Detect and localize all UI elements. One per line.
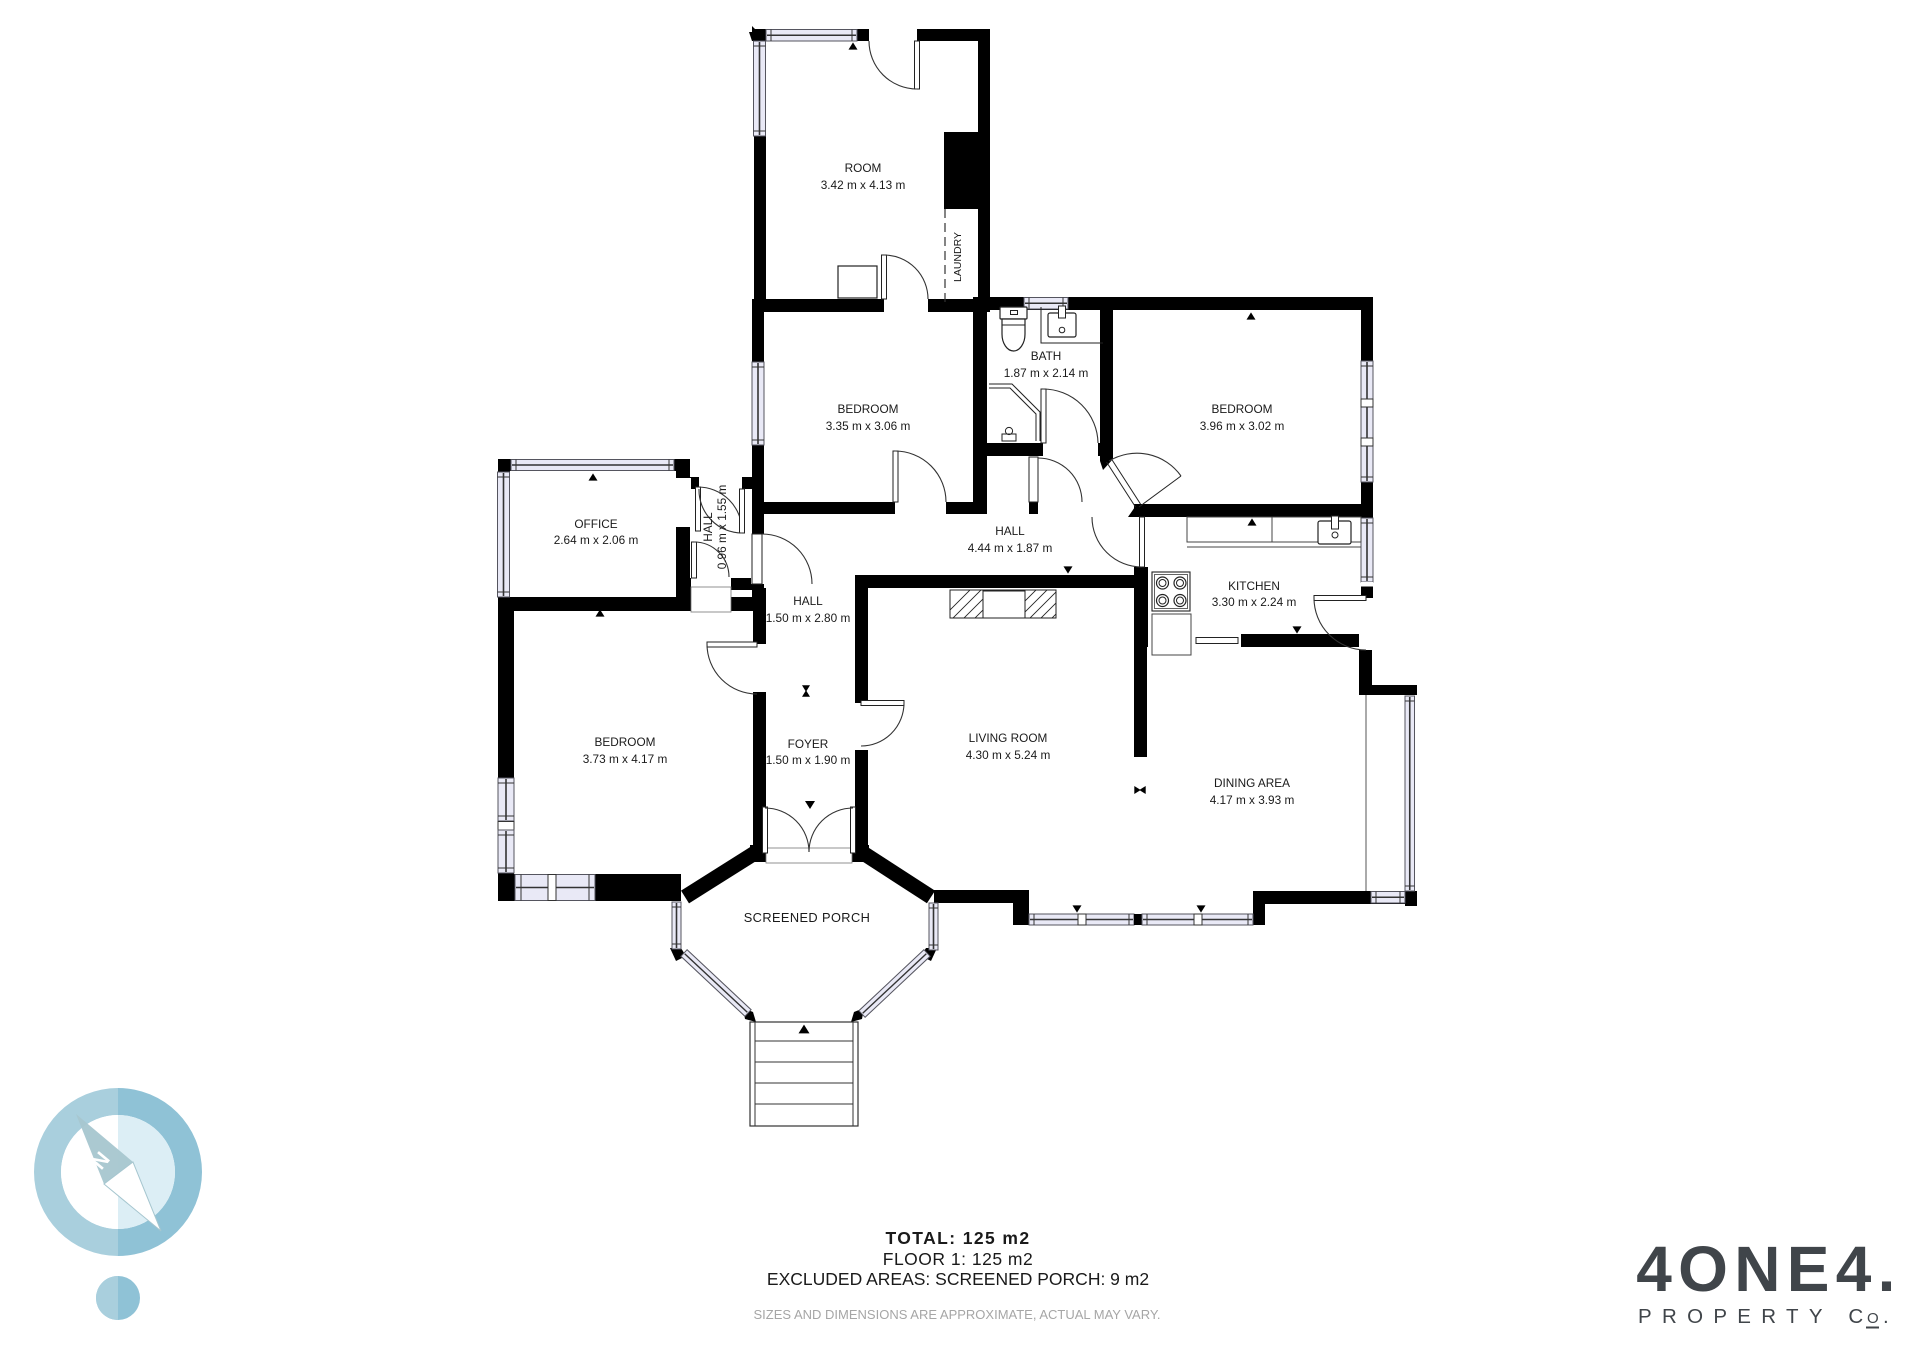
svg-text:4.17 m x 3.93 m: 4.17 m x 3.93 m (1210, 793, 1295, 807)
svg-text:2.64 m x 2.06 m: 2.64 m x 2.06 m (554, 533, 639, 547)
svg-text:BEDROOM: BEDROOM (1212, 402, 1273, 416)
svg-text:3.42 m x 4.13 m: 3.42 m x 4.13 m (821, 178, 906, 192)
svg-text:3.73 m x 4.17 m: 3.73 m x 4.17 m (583, 752, 668, 766)
svg-text:3.30 m x 2.24 m: 3.30 m x 2.24 m (1212, 595, 1297, 609)
svg-text:OFFICE: OFFICE (574, 517, 617, 531)
svg-text:ROOM: ROOM (845, 161, 882, 175)
svg-text:LAUNDRY: LAUNDRY (952, 232, 964, 282)
svg-text:LIVING ROOM: LIVING ROOM (969, 731, 1048, 745)
svg-text:FOYER: FOYER (788, 737, 829, 751)
svg-text:HALL: HALL (701, 512, 715, 542)
svg-text:0.96 m x 1.55 m: 0.96 m x 1.55 m (715, 485, 729, 570)
svg-text:HALL: HALL (995, 524, 1025, 538)
svg-text:PROPERTY C: PROPERTY C (1638, 1305, 1874, 1328)
svg-text:SCREENED PORCH: SCREENED PORCH (744, 910, 870, 925)
svg-text:.: . (1883, 1305, 1889, 1328)
svg-text:BATH: BATH (1031, 349, 1062, 363)
svg-text:HALL: HALL (793, 594, 823, 608)
svg-text:TOTAL: 125 m2: TOTAL: 125 m2 (886, 1228, 1031, 1248)
svg-text:4.30 m x 5.24 m: 4.30 m x 5.24 m (966, 748, 1051, 762)
svg-text:4ONE4.: 4ONE4. (1636, 1233, 1901, 1305)
svg-text:3.96 m x 3.02 m: 3.96 m x 3.02 m (1200, 419, 1285, 433)
svg-text:1.87 m x 2.14 m: 1.87 m x 2.14 m (1004, 366, 1089, 380)
svg-text:DINING AREA: DINING AREA (1214, 776, 1290, 790)
svg-text:EXCLUDED AREAS: SCREENED PORCH: EXCLUDED AREAS: SCREENED PORCH: 9 m2 (767, 1269, 1149, 1289)
svg-text:1.50 m x 2.80 m: 1.50 m x 2.80 m (766, 611, 851, 625)
svg-text:SIZES AND DIMENSIONS ARE APPRO: SIZES AND DIMENSIONS ARE APPROXIMATE, AC… (754, 1307, 1161, 1322)
svg-text:FLOOR 1: 125 m2: FLOOR 1: 125 m2 (883, 1249, 1033, 1269)
svg-text:BEDROOM: BEDROOM (838, 402, 899, 416)
svg-text:KITCHEN: KITCHEN (1228, 579, 1280, 593)
svg-text:4.44 m x 1.87 m: 4.44 m x 1.87 m (968, 541, 1053, 555)
svg-text:1.50 m x 1.90 m: 1.50 m x 1.90 m (766, 753, 851, 767)
svg-text:3.35 m x 3.06 m: 3.35 m x 3.06 m (826, 419, 911, 433)
svg-text:BEDROOM: BEDROOM (595, 735, 656, 749)
svg-text:O: O (1867, 1310, 1879, 1327)
